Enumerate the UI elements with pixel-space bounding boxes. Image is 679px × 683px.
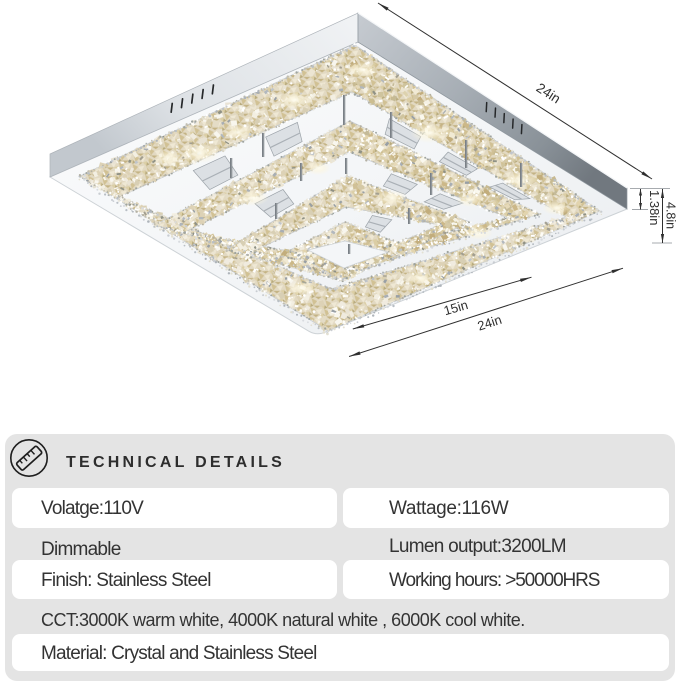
svg-text:24in: 24in bbox=[476, 312, 504, 334]
svg-text:24in: 24in bbox=[534, 80, 564, 106]
svg-text:1.38in: 1.38in bbox=[647, 190, 662, 225]
svg-text:4.8in: 4.8in bbox=[664, 202, 678, 229]
svg-text:15in: 15in bbox=[442, 297, 470, 318]
